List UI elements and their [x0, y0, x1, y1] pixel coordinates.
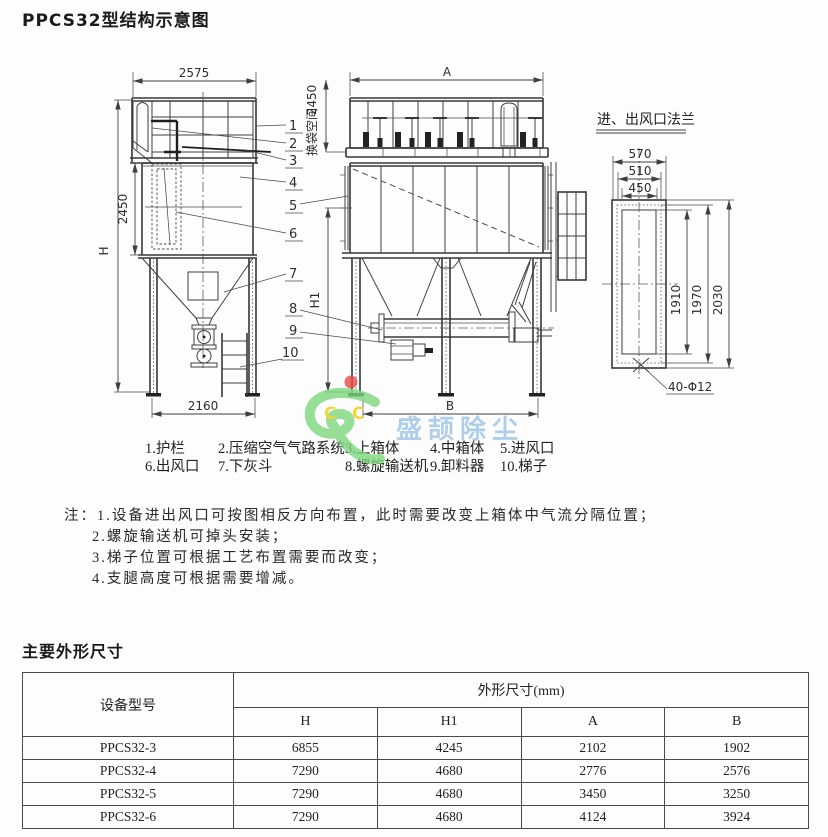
cell-model: PPCS32-4	[23, 760, 234, 783]
part-label-5: 5	[289, 199, 297, 214]
part-label-2: 2	[289, 137, 297, 152]
cell-A: 2776	[521, 760, 665, 783]
note-prefix: 注：	[64, 508, 97, 524]
part-label-9: 9	[289, 324, 297, 339]
watermark-c-right: C	[352, 404, 364, 424]
dim-B: B	[446, 399, 454, 413]
col-header-group: 外形尺寸(mm)	[234, 673, 809, 708]
inlet-duct	[551, 162, 586, 312]
cell-A: 2102	[521, 737, 665, 760]
part-label-3: 3	[289, 154, 297, 169]
col-header-A: A	[521, 708, 665, 737]
cell-A: 3450	[521, 783, 665, 806]
col-header-H: H	[234, 708, 378, 737]
dimensions-table: 设备型号 外形尺寸(mm) H H1 A B PPCS32-3 6855 424…	[22, 672, 809, 829]
dim-2450: 2450	[116, 194, 130, 225]
note-line-3: 3.梯子位置可根据工艺布置需要而改变；	[64, 548, 656, 569]
notes-block: 注：1.设备进出风口可按图相反方向布置，此时需要改变上箱体中气流分隔位置； 2.…	[64, 506, 656, 590]
note-line-2: 2.螺旋输送机可掉头安装；	[64, 527, 656, 548]
dim-bag-space-label: 换袋空间	[305, 108, 319, 156]
part-label-10: 10	[282, 346, 299, 361]
cell-A: 4124	[521, 806, 665, 829]
cell-B: 2576	[665, 760, 809, 783]
watermark-c-left: C	[324, 404, 336, 424]
note-line-4: 4.支腿高度可根据需要增减。	[64, 569, 656, 590]
legend-item-10: 10.梯子	[500, 458, 547, 475]
dim-510: 510	[629, 164, 652, 178]
note-line-1: 注：1.设备进出风口可按图相反方向布置，此时需要改变上箱体中气流分隔位置；	[64, 506, 656, 527]
pulse-valves	[363, 118, 542, 147]
page-title: PPCS32型结构示意图	[22, 6, 210, 31]
legend-item-9: 9.卸料器	[430, 458, 485, 475]
cell-model: PPCS32-6	[23, 806, 234, 829]
dim-2030: 2030	[711, 285, 725, 316]
part-label-6: 6	[289, 227, 297, 242]
structure-diagram: 2575 H 2450 2160	[0, 36, 828, 480]
dim-bolt-holes: 40-Φ12	[668, 380, 712, 394]
legend-item-6: 6.出风口	[145, 458, 199, 475]
dim-2160: 2160	[188, 399, 219, 413]
watermark: C C 盛颉除尘	[310, 376, 524, 460]
flange-detail-view: 进、出风口法兰 570 510 450 1910 1970 2030	[596, 112, 734, 394]
table-row: PPCS32-5 7290 4680 3450 3250	[23, 783, 809, 806]
catalog-page: PPCS32型结构示意图	[0, 0, 828, 837]
legend-item-8: 8.螺旋输送机	[345, 458, 429, 475]
watermark-red-dot	[345, 376, 358, 389]
cell-H: 7290	[234, 783, 378, 806]
cell-H1: 4680	[377, 806, 521, 829]
dim-1910: 1910	[669, 285, 683, 316]
col-header-B: B	[665, 708, 809, 737]
watermark-text: 盛颉除尘	[396, 414, 524, 445]
cell-model: PPCS32-3	[23, 737, 234, 760]
cell-H1: 4680	[377, 760, 521, 783]
side-view-dimensions: 2575 H 2450 2160	[97, 66, 256, 418]
dim-450: 450	[629, 181, 652, 195]
part-label-4: 4	[289, 176, 297, 191]
cell-H1: 4245	[377, 737, 521, 760]
air-tank	[501, 103, 517, 157]
cell-H: 7290	[234, 806, 378, 829]
dim-H1: H1	[308, 292, 322, 309]
cell-model: PPCS32-5	[23, 783, 234, 806]
cell-B: 1902	[665, 737, 809, 760]
table-row: PPCS32-3 6855 4245 2102 1902	[23, 737, 809, 760]
side-view	[130, 92, 271, 397]
part-label-1: 1	[289, 119, 297, 134]
cell-H1: 4680	[377, 783, 521, 806]
part-label-8: 8	[289, 302, 297, 317]
flange-view-title: 进、出风口法兰	[597, 112, 695, 128]
cell-B: 3924	[665, 806, 809, 829]
table-row: PPCS32-4 7290 4680 2776 2576	[23, 760, 809, 783]
dim-2575: 2575	[179, 66, 210, 80]
screw-conveyor	[368, 302, 554, 360]
cell-H: 7290	[234, 760, 378, 783]
table-row: PPCS32-6 7290 4680 4124 3924	[23, 806, 809, 829]
legend-item-7: 7.下灰斗	[218, 458, 272, 475]
dim-570: 570	[629, 147, 652, 161]
col-header-H1: H1	[377, 708, 521, 737]
dim-H: H	[97, 246, 111, 255]
legend-item-2: 2.压缩空气气路系统	[218, 440, 345, 457]
front-view	[340, 98, 586, 397]
cell-B: 3250	[665, 783, 809, 806]
dim-A: A	[443, 65, 452, 79]
dimensions-heading: 主要外形尺寸	[22, 638, 124, 662]
part-label-7: 7	[289, 267, 297, 282]
col-header-model: 设备型号	[23, 673, 234, 737]
legend-item-1: 1.护栏	[145, 440, 185, 457]
dim-1970: 1970	[690, 285, 704, 316]
cell-H: 6855	[234, 737, 378, 760]
